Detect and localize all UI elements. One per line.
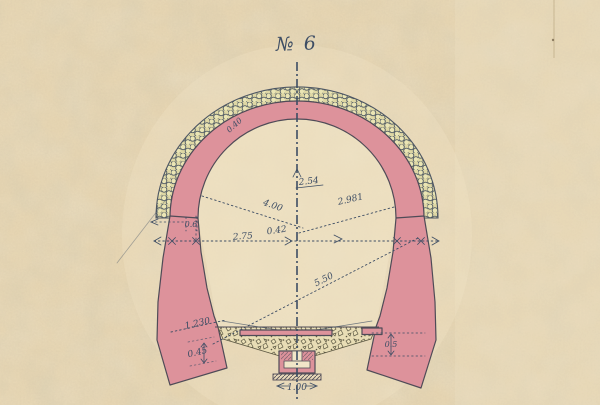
scanned-drawing-page: 0.40 2.54 2.981 4.00 2.75 0.42 0.6 5.50 … xyxy=(0,0,600,405)
drawing-number-title: № 6 xyxy=(274,32,318,55)
dim-half-span: 2.75 xyxy=(232,231,254,242)
dim-wall-top-thickness: 0.6 xyxy=(185,220,198,229)
paper-speck xyxy=(552,39,554,41)
paper-light-band-right xyxy=(455,0,600,405)
sleeper-block-right xyxy=(362,328,382,335)
tunnel-cross-section-drawing: 0.40 2.54 2.981 4.00 2.75 0.42 0.6 5.50 … xyxy=(0,0,600,405)
drain-hatch-left xyxy=(281,352,291,360)
sleeper-plank xyxy=(240,330,332,336)
drain-hatch-right xyxy=(303,352,313,360)
dim-right-wall-depth: 0.5 xyxy=(385,340,398,349)
